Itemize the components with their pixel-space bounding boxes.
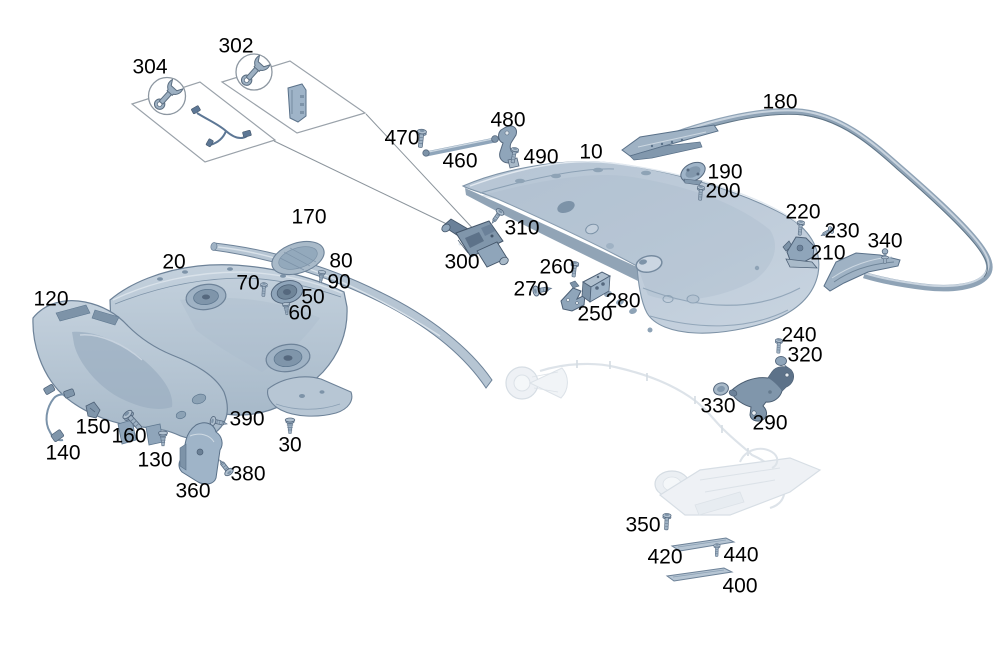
callout-480[interactable]: 480	[490, 110, 525, 131]
callout-60[interactable]: 60	[288, 303, 311, 324]
callout-340[interactable]: 340	[867, 231, 902, 252]
callout-302[interactable]: 302	[218, 36, 253, 57]
callout-320[interactable]: 320	[787, 345, 822, 366]
callout-310[interactable]: 310	[504, 218, 539, 239]
callout-230[interactable]: 230	[824, 221, 859, 242]
callout-390[interactable]: 390	[229, 409, 264, 430]
callouts-layer: 304 302 470 460 480 490 10 180 190 200 2…	[0, 0, 1000, 664]
callout-300[interactable]: 300	[444, 252, 479, 273]
callout-240[interactable]: 240	[781, 325, 816, 346]
callout-290[interactable]: 290	[752, 413, 787, 434]
callout-120[interactable]: 120	[33, 289, 68, 310]
callout-140[interactable]: 140	[45, 443, 80, 464]
callout-130[interactable]: 130	[137, 450, 172, 471]
callout-220[interactable]: 220	[785, 202, 820, 223]
callout-460[interactable]: 460	[442, 151, 477, 172]
callout-380[interactable]: 380	[230, 464, 265, 485]
callout-470[interactable]: 470	[384, 128, 419, 149]
callout-90[interactable]: 90	[327, 272, 350, 293]
callout-304[interactable]: 304	[132, 57, 167, 78]
callout-20[interactable]: 20	[162, 252, 185, 273]
callout-280[interactable]: 280	[605, 291, 640, 312]
callout-210[interactable]: 210	[810, 243, 845, 264]
callout-260[interactable]: 260	[539, 257, 574, 278]
callout-270[interactable]: 270	[513, 279, 548, 300]
callout-10[interactable]: 10	[579, 142, 602, 163]
callout-30[interactable]: 30	[278, 435, 301, 456]
callout-170[interactable]: 170	[291, 207, 326, 228]
parts-diagram-canvas: 304 302 470 460 480 490 10 180 190 200 2…	[0, 0, 1000, 664]
callout-80[interactable]: 80	[329, 251, 352, 272]
callout-440[interactable]: 440	[723, 545, 758, 566]
callout-70[interactable]: 70	[236, 273, 259, 294]
callout-400[interactable]: 400	[722, 576, 757, 597]
callout-360[interactable]: 360	[175, 481, 210, 502]
callout-490[interactable]: 490	[523, 147, 558, 168]
callout-330[interactable]: 330	[700, 396, 735, 417]
callout-150[interactable]: 150	[75, 417, 110, 438]
callout-350[interactable]: 350	[625, 515, 660, 536]
callout-160[interactable]: 160	[111, 426, 146, 447]
callout-420[interactable]: 420	[647, 547, 682, 568]
callout-200[interactable]: 200	[705, 181, 740, 202]
callout-180[interactable]: 180	[762, 92, 797, 113]
